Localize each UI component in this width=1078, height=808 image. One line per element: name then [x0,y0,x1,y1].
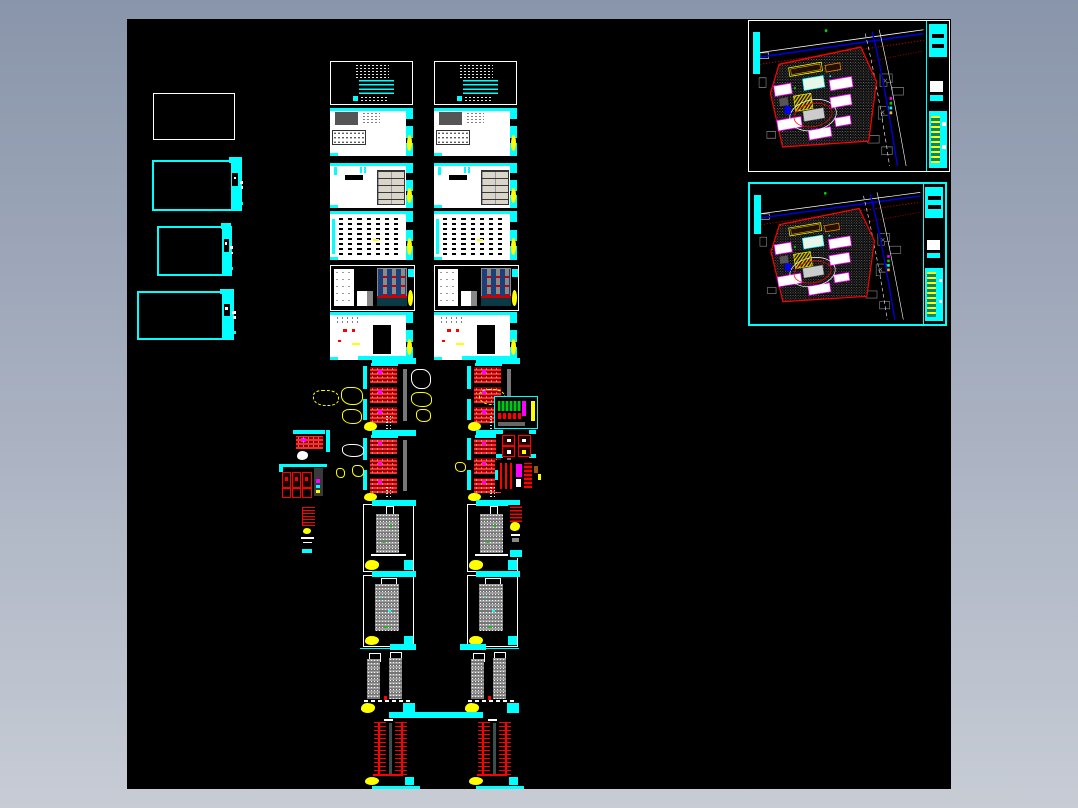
yellow-bit [316,490,320,493]
drawing-panel-mid [357,291,374,306]
schedule-column [461,215,465,255]
sheet-corner-tab [330,205,338,208]
magenta-dot [482,370,486,373]
cyan-right-bar [326,430,330,452]
red-base [373,774,403,776]
cyan-tab [279,464,283,472]
tile-sheet-detail [434,312,517,360]
schedule-column [367,215,371,255]
cyan-connector-bar [390,644,416,650]
title-block-gray [439,112,462,125]
twin-tower [493,658,506,699]
white-square [927,240,940,250]
tile-section-red [468,718,518,786]
cyan-bit [231,331,236,335]
cyan-corner [529,430,536,434]
text-scribble [466,112,484,124]
cyan-sheet-2 [157,226,232,276]
gray-bit [512,538,519,542]
tile-mini-dense [495,460,541,492]
yellow-tick [538,474,541,480]
tile-elev-twin [464,648,519,713]
yellow-blob [365,636,379,645]
revision-cloud [341,387,363,405]
schedule-column [385,215,389,255]
yellow-blob [469,560,483,569]
red-box [292,472,302,488]
cyan-left-bar [467,470,471,490]
column-top-block [925,187,943,218]
drawing-panel-left [334,269,354,306]
sheet-right-gap [406,173,413,180]
tile-facade [434,265,519,311]
schedule-column [489,215,493,255]
site-plan-drawing [753,24,927,168]
red-plan-block [370,367,397,383]
green-patch [498,401,521,411]
drawing-panel-left [438,269,458,306]
tile-mini-plan-b [279,464,330,500]
base-line [371,554,406,557]
section-ticks-left [478,722,490,775]
cyan-tab [508,560,517,570]
schedule-column [394,215,398,255]
schedule-column [348,215,352,255]
column-bottom-block [929,111,947,168]
section-ticks-right [499,722,511,775]
red-box [282,472,292,488]
twin-tower [471,659,484,699]
yellow-blob [361,703,375,713]
yellow-dash [352,343,359,345]
revision-cloud [342,409,362,424]
red-mark [447,329,450,332]
sheet-top-edge [330,163,413,166]
tile-facade [330,265,415,311]
red-dot [295,477,298,481]
sheet-right-gap [510,323,517,331]
cyan-left-bar [753,28,760,74]
sheet-top-edge [434,312,517,315]
site-plan-1-content [753,24,927,168]
cyan-tick [360,167,362,173]
blank-sheet-1 [153,93,235,140]
sheet-corner-tab [330,153,338,156]
black-bar [449,175,467,180]
cyan-tab [408,269,414,278]
sheet-right-gap [510,222,517,230]
tile-sheet-schedule [434,211,517,260]
red-base [477,774,507,776]
red-box-small [282,488,292,499]
black-dash [932,44,945,48]
yellow-mark [477,239,483,241]
green-mark [494,525,496,527]
cyan-notch [220,289,234,295]
site-plan-2-content [754,187,924,321]
black-block [477,325,495,354]
red-mark [352,329,355,332]
white-blob [297,451,308,460]
cover-art-base [360,96,388,101]
site-plan-1 [748,20,950,172]
tile-strip-left [299,506,318,554]
yellow-blob [365,777,379,785]
sheet-corner-tab [434,205,442,208]
cyan-left-bar [363,366,367,389]
site-plan-2 [748,182,947,326]
dotted-table [332,130,366,145]
magenta-bit [522,401,526,416]
red-row [498,413,521,420]
tile-cover [434,61,517,105]
schedule-column [498,215,502,255]
cyan-tick [334,167,336,175]
sheet-top-edge [434,108,517,111]
section-structure [378,722,403,775]
cyan-tab [405,777,414,786]
tile-plan-red [363,435,410,502]
red-dot [285,477,288,481]
magenta-bit [316,479,320,483]
revision-cloud [352,465,364,477]
tile-elev-tall [467,575,518,647]
cyan-fleck [492,610,494,612]
cyan-top-bar [293,430,325,434]
magenta-dot [482,442,486,445]
facade-storefront [377,296,408,307]
facade-windows [378,269,406,297]
white-mark [225,307,228,310]
cyan-tab [508,636,517,646]
red-scribble [302,507,315,525]
sheet-right-gap [406,222,413,230]
gray-strip [403,440,407,491]
facade-drawing [481,268,512,307]
white-tick [942,122,945,125]
schedule-column [443,215,447,255]
red-cluster [510,506,522,522]
cyan-bit [239,202,243,206]
magenta-dot [301,438,305,442]
tile-sheet-tan [434,163,517,208]
title-block-gray [335,112,358,125]
revision-cloud [313,390,339,406]
cyan-tick [364,167,366,173]
green-mark [383,541,385,543]
tile-strip-right [508,505,525,558]
cyan-bit [229,267,233,271]
tile-sheet-gray [330,108,413,156]
cyan-connector-bar [372,571,416,577]
magenta-dot [482,481,486,484]
base-line [364,700,410,702]
title-column-square [232,173,238,186]
tan-table [481,170,509,204]
cyan-sheet-3 [137,291,234,340]
schedule-column [376,215,380,255]
sheet-right-gap [510,119,517,127]
red-plan-block [370,407,397,423]
red-box [302,472,312,488]
revision-cloud [342,444,364,457]
drawing-canvas[interactable] [127,19,951,789]
green-mark [390,525,392,527]
sheet-top-edge [330,211,413,214]
twin-tower [367,659,380,699]
section-ticks-left [374,722,386,775]
revision-cloud [416,409,431,422]
white-tick [233,316,236,318]
sheet-corner-tab [330,357,338,360]
cyan-square [927,253,940,259]
sheet-top-edge [330,108,413,111]
white-tick [241,186,244,188]
white-tick [942,145,945,148]
red-plan-block [370,439,397,454]
magenta-dot [378,481,382,484]
cyan-tab [404,560,413,570]
site-plan-1-title-column [926,21,949,171]
cyan-tab [512,269,518,278]
yellow-blob [365,560,379,569]
white-mark [488,719,497,722]
cyan-bit [316,485,320,489]
cyan-tick [464,167,466,173]
site-plan-drawing [754,187,924,321]
facade-windows [482,269,510,297]
cyan-block [510,550,522,557]
white-mark [225,242,227,245]
dotted-table [436,130,470,145]
sheet-top-edge [330,312,413,315]
cyan-sheet-1 [152,160,242,211]
cyan-fleck [388,610,390,612]
tile-mini-red-boxes [496,430,536,458]
revision-cloud [411,369,431,389]
black-dash [928,205,941,209]
red-mark [488,696,491,699]
cyan-left-bar [467,438,471,461]
base-line [475,554,510,557]
tile-elev-twin [360,648,415,713]
white-square [930,81,943,92]
tile-sheet-detail [330,312,413,360]
text-scribble [335,316,360,325]
cyan-connector-bar [476,358,520,364]
tan-table [377,170,405,204]
yellow-blob [512,290,517,305]
yellow-blob [408,290,413,305]
cyan-tab [509,777,518,786]
red-mark [456,329,459,332]
text-scribble [362,112,380,124]
red-box [502,435,515,446]
white-dot [522,439,526,443]
red-mark [384,696,387,699]
white-tick [230,246,233,249]
cyan-connector-bar [476,786,524,789]
figure-sketch [385,415,392,429]
red-box-small [292,488,302,499]
cyan-tab [507,703,519,713]
tile-sheet-tan [330,163,413,208]
red-box-small [302,488,312,499]
yellow-mark [373,239,379,241]
cover-art-base [464,96,492,101]
cyan-square [930,95,943,101]
tile-plan-red [363,363,410,432]
yellow-dot [303,528,311,534]
white-block [516,479,522,487]
yellow-dash [456,343,463,345]
green-mark [489,626,492,628]
magenta-block [516,464,522,477]
revision-cloud [411,392,432,407]
magenta-dot [378,442,382,445]
magenta-dot [378,370,382,373]
cyan-left-bar [467,366,471,389]
cyan-left-bar [332,219,335,254]
red-box [518,446,531,457]
text-scribble [439,316,464,325]
title-column-square [224,239,229,252]
tile-cover [330,61,413,105]
column-top-block [929,24,947,57]
cyan-notch [229,157,242,163]
sheet-right-gap [406,119,413,127]
black-bar [345,175,363,180]
white-tick [240,181,243,184]
section-ticks-right [395,722,407,775]
base-line [468,700,514,702]
yellow-blob [469,777,483,785]
cyan-fleck [484,596,486,598]
cyan-connector-bar [460,644,486,650]
black-block [373,325,391,354]
gray-band [498,422,526,427]
cyan-tick [468,167,470,173]
drawing-panel-mid [461,291,478,306]
cover-art-scribble [355,64,389,79]
red-mark [338,340,340,342]
tile-elev-white [363,504,414,572]
schedule-column [339,215,343,255]
red-verticals [500,463,514,489]
brown-bit [534,466,539,473]
cover-art-square [353,96,358,101]
cyan-connector-bar [476,571,520,577]
cyan-connector-bar [372,786,420,789]
tile-section-red [364,718,414,786]
red-plan-block [370,458,397,473]
schedule-column [480,215,484,255]
red-mark [343,329,346,332]
revision-cloud [336,468,345,478]
cyan-left-bar [754,191,761,234]
yellow-stripes [927,272,936,317]
magenta-dot [378,410,382,413]
green-mark [385,626,388,628]
tile-mini-color [494,396,538,429]
green-mark [487,541,489,543]
red-box [518,435,531,446]
white-tick [939,279,942,282]
tile-sheet-gray [434,108,517,156]
white-dot [507,439,511,443]
sheet-top-edge [434,211,517,214]
yellow-bar [531,401,535,421]
cyan-left-bar [467,399,471,420]
schedule-column [471,215,475,255]
white-tick [301,537,314,539]
gray-strip [403,369,407,421]
sheet-right-gap [510,173,517,180]
cyan-notch [495,470,498,480]
cyan-notch [221,223,232,229]
tower-elevation [480,514,504,554]
magenta-dot [378,462,382,465]
cyan-connector-bar [372,500,416,506]
cyan-bit [302,549,312,553]
red-plan-block [474,367,501,383]
cyan-left-bar [363,399,367,420]
column-bottom-block [925,268,943,321]
white-bit [511,534,520,536]
cyan-connector-bar [372,430,416,436]
sheet-corner-tab [434,357,442,360]
schedule-column [452,215,456,255]
cyan-corner [496,430,503,434]
red-mark [442,340,444,342]
magenta-dot [482,410,486,413]
red-block [524,463,532,487]
red-plan-block [370,387,397,403]
white-mark [384,719,393,722]
sheet-top-edge [434,163,517,166]
cyan-top-bar [282,464,327,467]
section-core [389,723,392,774]
white-dot [507,450,511,454]
sheet-corner-tab [434,257,442,260]
yellow-dot [522,450,526,454]
white-tick [232,311,236,314]
section-core [493,723,496,774]
black-dash [932,34,945,38]
cover-art-square [457,96,462,101]
sheet-right-gap [406,323,413,331]
cover-art-lines [359,80,395,96]
cyan-connector-bar [372,358,416,364]
cyan-connector-bar [389,712,483,718]
cyan-tick [438,167,440,175]
cover-art-scribble [459,64,493,79]
black-dash [928,196,941,200]
red-box [502,446,515,457]
site-plan-2-title-column [923,184,945,324]
revision-cloud [455,462,466,472]
tile-elev-tall [363,575,414,647]
yellow-blob [510,522,520,530]
cover-art-lines [463,80,499,96]
figure-sketch [385,486,392,499]
red-dot [305,477,308,481]
tower-elevation [375,584,400,632]
magenta-dot [378,390,382,393]
facade-storefront [481,296,512,307]
cyan-fleck [380,596,382,598]
twin-tower [389,658,402,699]
